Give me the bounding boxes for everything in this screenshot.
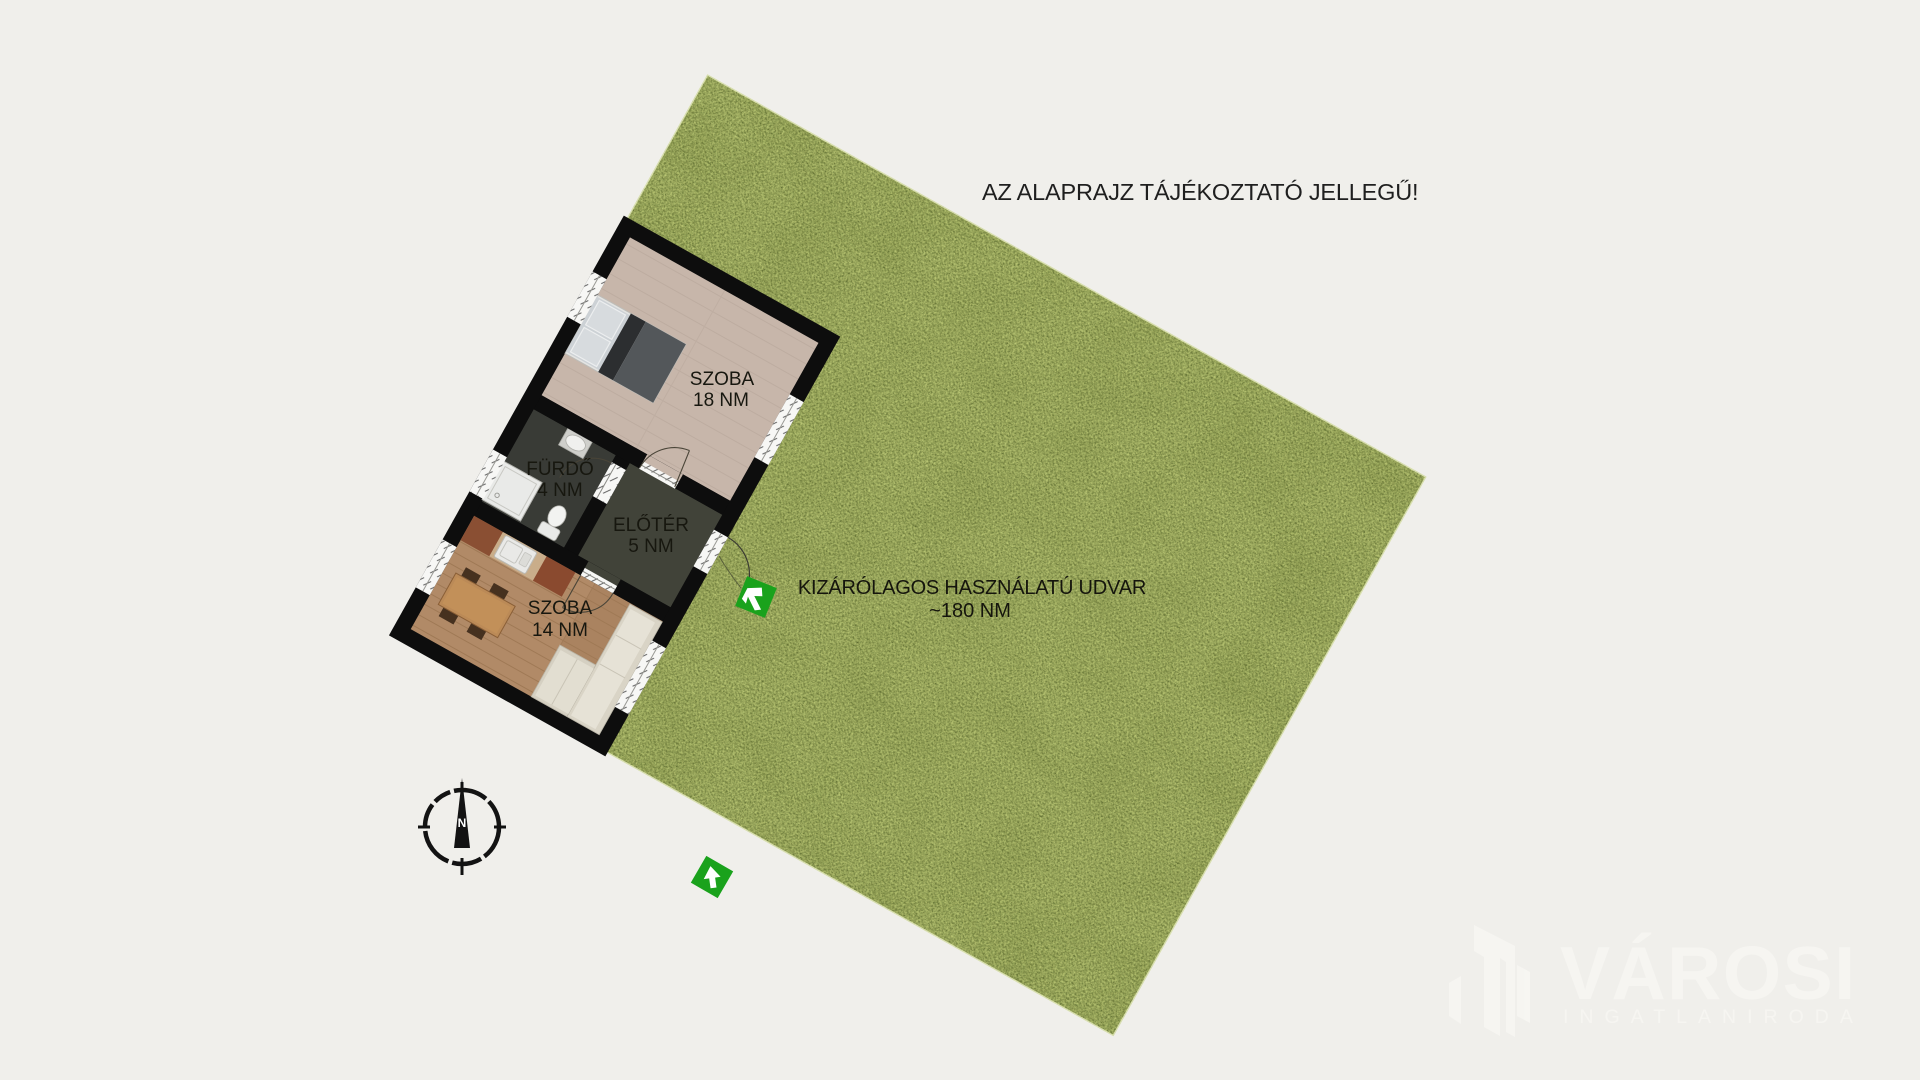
svg-text:SZOBA: SZOBA bbox=[528, 598, 593, 619]
svg-text:AZ ALAPRAJZ TÁJÉKOZTATÓ JELLEG: AZ ALAPRAJZ TÁJÉKOZTATÓ JELLEGŰ! bbox=[982, 179, 1418, 205]
svg-text:N: N bbox=[458, 816, 467, 830]
svg-text:14 NM: 14 NM bbox=[532, 620, 588, 641]
svg-text:5 NM: 5 NM bbox=[628, 536, 673, 557]
svg-text:SZOBA: SZOBA bbox=[690, 369, 755, 390]
svg-text:4 NM: 4 NM bbox=[537, 480, 582, 501]
svg-text:INGATLANIRODA: INGATLANIRODA bbox=[1563, 1006, 1864, 1028]
svg-text:~180 NM: ~180 NM bbox=[929, 600, 1011, 622]
svg-text:VÁROSI: VÁROSI bbox=[1560, 931, 1857, 1015]
svg-text:FÜRDŐ: FÜRDŐ bbox=[526, 458, 594, 480]
svg-text:18 NM: 18 NM bbox=[693, 390, 749, 411]
svg-text:ELŐTÉR: ELŐTÉR bbox=[613, 514, 689, 536]
svg-text:KIZÁRÓLAGOS HASZNÁLATÚ UDVAR: KIZÁRÓLAGOS HASZNÁLATÚ UDVAR bbox=[798, 576, 1146, 599]
